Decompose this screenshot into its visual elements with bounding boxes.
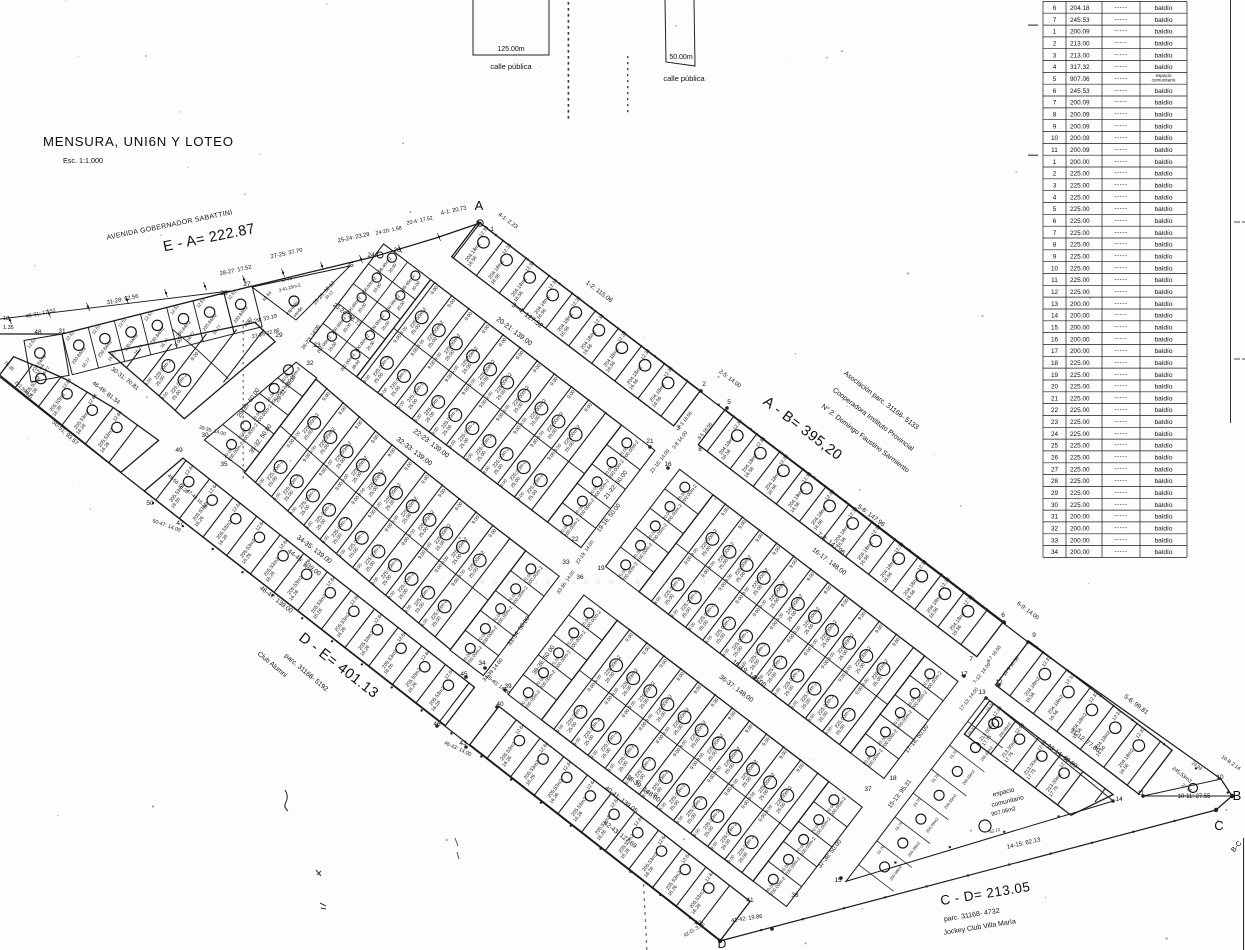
svg-text:-----: ----- [1114, 335, 1127, 342]
svg-text:30: 30 [201, 432, 209, 439]
svg-text:225.00: 225.00 [1070, 171, 1090, 178]
svg-text:-----: ----- [1114, 63, 1127, 70]
svg-text:-----: ----- [1114, 170, 1127, 177]
svg-text:225.00: 225.00 [1070, 431, 1090, 438]
svg-text:225.00: 225.00 [1070, 490, 1090, 497]
svg-text:16: 16 [664, 461, 672, 468]
svg-text:50: 50 [146, 500, 154, 507]
svg-text:baldío: baldío [1155, 29, 1173, 36]
svg-text:10-11: 27.55: 10-11: 27.55 [1178, 794, 1212, 800]
svg-text:7: 7 [969, 656, 973, 663]
svg-text:1: 1 [1053, 159, 1057, 166]
svg-text:14: 14 [1051, 313, 1059, 320]
svg-text:baldío: baldío [1155, 301, 1173, 308]
svg-text:-----: ----- [1114, 371, 1127, 378]
svg-text:19: 19 [597, 565, 605, 572]
svg-text:-----: ----- [1114, 323, 1127, 330]
svg-text:200.00: 200.00 [1070, 301, 1090, 308]
svg-text:907.06: 907.06 [1070, 76, 1090, 83]
svg-text:5: 5 [1053, 206, 1057, 213]
svg-text:baldío: baldío [1155, 502, 1173, 509]
svg-text:baldío: baldío [1155, 100, 1173, 107]
svg-text:-----: ----- [1114, 75, 1127, 82]
svg-text:21: 21 [646, 438, 654, 445]
svg-text:225.00: 225.00 [1070, 502, 1090, 509]
svg-text:34: 34 [478, 660, 486, 667]
svg-text:18: 18 [3, 316, 9, 322]
svg-text:200.00: 200.00 [1070, 514, 1090, 521]
svg-text:33: 33 [562, 559, 570, 566]
svg-text:13: 13 [978, 689, 986, 696]
svg-text:baldío: baldío [1155, 478, 1173, 485]
svg-text:28: 28 [220, 290, 228, 297]
svg-text:-----: ----- [1114, 122, 1127, 129]
svg-text:-----: ----- [1114, 347, 1127, 354]
svg-text:-----: ----- [1114, 513, 1127, 520]
svg-text:17: 17 [1051, 348, 1059, 355]
svg-text:200.00: 200.00 [1070, 313, 1090, 320]
svg-text:-----: ----- [1114, 394, 1127, 401]
svg-text:46: 46 [433, 721, 441, 728]
svg-text:-----: ----- [1114, 406, 1127, 413]
svg-text:7: 7 [1053, 17, 1057, 24]
svg-text:-----: ----- [1114, 548, 1127, 555]
svg-text:baldío: baldío [1155, 183, 1173, 190]
svg-text:4: 4 [1053, 64, 1057, 71]
svg-text:baldío: baldío [1155, 230, 1173, 237]
svg-text:225.00: 225.00 [1070, 407, 1090, 414]
svg-text:125.00m: 125.00m [497, 46, 524, 53]
svg-text:200.00: 200.00 [1070, 537, 1090, 544]
svg-text:225.00: 225.00 [1070, 194, 1090, 201]
svg-text:baldío: baldío [1155, 324, 1173, 331]
svg-text:-----: ----- [1114, 182, 1127, 189]
svg-text:5: 5 [1053, 76, 1057, 83]
svg-text:29: 29 [1051, 490, 1059, 497]
svg-text:25: 25 [346, 262, 354, 269]
svg-text:baldío: baldío [1155, 41, 1173, 48]
svg-text:225.00: 225.00 [1070, 183, 1090, 190]
svg-text:-----: ----- [1114, 489, 1127, 496]
svg-text:48: 48 [34, 329, 42, 336]
svg-text:-----: ----- [1114, 525, 1127, 532]
svg-text:225.00: 225.00 [1070, 230, 1090, 237]
svg-text:baldío: baldío [1155, 265, 1173, 272]
svg-text:225.00: 225.00 [1070, 455, 1090, 462]
svg-text:5: 5 [727, 399, 731, 406]
svg-text:-----: ----- [1114, 418, 1127, 425]
svg-text:-----: ----- [1114, 442, 1127, 449]
svg-text:32: 32 [306, 360, 314, 367]
svg-text:-----: ----- [1114, 454, 1127, 461]
svg-text:-----: ----- [1114, 158, 1127, 165]
svg-text:baldío: baldío [1155, 549, 1173, 556]
svg-text:baldío: baldío [1155, 52, 1173, 59]
svg-text:-----: ----- [1114, 501, 1127, 508]
svg-text:213.00: 213.00 [1070, 52, 1090, 59]
svg-text:baldío: baldío [1155, 112, 1173, 119]
svg-text:8: 8 [1053, 242, 1057, 249]
svg-text:32: 32 [1051, 526, 1059, 533]
svg-text:200.09: 200.09 [1070, 29, 1090, 36]
svg-text:28: 28 [1051, 478, 1059, 485]
svg-text:8: 8 [698, 446, 702, 453]
svg-text:1: 1 [1053, 29, 1057, 36]
svg-text:200.09: 200.09 [1070, 100, 1090, 107]
svg-text:baldío: baldío [1155, 5, 1173, 12]
svg-text:29: 29 [275, 332, 283, 339]
svg-text:-----: ----- [1114, 288, 1127, 295]
svg-text:43: 43 [459, 740, 467, 747]
svg-text:-----: ----- [1114, 111, 1127, 118]
svg-text:200.00: 200.00 [1070, 324, 1090, 331]
svg-text:3: 3 [676, 425, 680, 432]
svg-text:200.09: 200.09 [1070, 123, 1090, 130]
svg-text:200.09: 200.09 [1070, 147, 1090, 154]
svg-text:38: 38 [791, 892, 799, 899]
svg-text:34: 34 [1051, 549, 1059, 556]
svg-text:200.00: 200.00 [1070, 526, 1090, 533]
svg-text:-----: ----- [1114, 51, 1127, 58]
svg-text:26: 26 [1051, 455, 1059, 462]
svg-text:baldío: baldío [1155, 395, 1173, 402]
svg-text:baldío: baldío [1155, 490, 1173, 497]
svg-text:27: 27 [1051, 466, 1059, 473]
svg-text:A: A [475, 198, 484, 213]
svg-text:baldío: baldío [1155, 277, 1173, 284]
svg-text:13: 13 [1051, 301, 1059, 308]
svg-text:23: 23 [313, 342, 321, 349]
svg-text:baldío: baldío [1155, 360, 1173, 367]
svg-text:7: 7 [1053, 100, 1057, 107]
svg-text:-----: ----- [1114, 99, 1127, 106]
svg-text:baldío: baldío [1155, 526, 1173, 533]
svg-text:1.35: 1.35 [3, 325, 14, 331]
svg-text:-----: ----- [1114, 40, 1127, 47]
svg-text:225.00: 225.00 [1070, 242, 1090, 249]
svg-text:8: 8 [1053, 112, 1057, 119]
svg-text:21: 21 [1051, 395, 1059, 402]
svg-text:200.00: 200.00 [1070, 159, 1090, 166]
svg-text:15: 15 [1051, 324, 1059, 331]
svg-text:-----: ----- [1114, 276, 1127, 283]
svg-text:-----: ----- [1114, 241, 1127, 248]
svg-text:200.00: 200.00 [1070, 336, 1090, 343]
svg-text:-----: ----- [1114, 430, 1127, 437]
svg-text:10: 10 [1051, 135, 1059, 142]
svg-text:225.00: 225.00 [1070, 443, 1090, 450]
svg-text:33: 33 [1051, 537, 1059, 544]
svg-text:225.00: 225.00 [1070, 384, 1090, 391]
svg-text:baldío: baldío [1155, 123, 1173, 130]
svg-text:baldío: baldío [1155, 88, 1173, 95]
svg-text:-----: ----- [1114, 477, 1127, 484]
svg-text:baldío: baldío [1155, 289, 1173, 296]
svg-text:11: 11 [1138, 790, 1145, 797]
svg-text:42: 42 [694, 920, 702, 927]
svg-text:-----: ----- [1114, 4, 1127, 11]
svg-text:-----: ----- [1114, 383, 1127, 390]
svg-text:225.00: 225.00 [1070, 277, 1090, 284]
svg-text:baldío: baldío [1155, 17, 1173, 24]
svg-text:225.00: 225.00 [1070, 478, 1090, 485]
svg-text:24: 24 [367, 252, 375, 259]
svg-text:35: 35 [220, 461, 228, 468]
svg-text:-----: ----- [1114, 253, 1127, 260]
svg-text:245.53: 245.53 [1070, 88, 1090, 95]
svg-text:15: 15 [834, 877, 842, 884]
svg-text:225.00: 225.00 [1070, 360, 1090, 367]
svg-text:-----: ----- [1114, 217, 1127, 224]
svg-text:3: 3 [1053, 183, 1057, 190]
svg-text:20: 20 [1051, 384, 1059, 391]
svg-text:baldío: baldío [1155, 514, 1173, 521]
svg-text:comunitario: comunitario [1152, 78, 1176, 83]
svg-text:40: 40 [496, 701, 504, 708]
svg-text:Esc. 1:1.000: Esc. 1:1.000 [63, 156, 103, 165]
svg-text:2: 2 [702, 381, 706, 388]
svg-text:24: 24 [1051, 431, 1059, 438]
svg-text:22: 22 [571, 536, 579, 543]
svg-text:18: 18 [1051, 360, 1059, 367]
svg-text:-----: ----- [1114, 359, 1127, 366]
svg-text:baldío: baldío [1155, 443, 1173, 450]
svg-text:317.32: 317.32 [1070, 64, 1090, 71]
svg-text:200.09: 200.09 [1070, 112, 1090, 119]
svg-text:41: 41 [746, 897, 754, 904]
svg-text:-----: ----- [1114, 536, 1127, 543]
svg-text:2: 2 [1053, 171, 1057, 178]
svg-text:49: 49 [175, 447, 183, 454]
svg-text:200.00: 200.00 [1070, 348, 1090, 355]
svg-text:baldío: baldío [1155, 242, 1173, 249]
svg-text:-----: ----- [1114, 229, 1127, 236]
svg-text:baldío: baldío [1155, 206, 1173, 213]
svg-text:47: 47 [176, 520, 184, 527]
svg-text:baldío: baldío [1155, 313, 1173, 320]
svg-text:18: 18 [889, 775, 897, 782]
svg-text:baldío: baldío [1155, 372, 1173, 379]
svg-text:37: 37 [864, 786, 872, 793]
svg-text:-----: ----- [1114, 465, 1127, 472]
svg-text:baldío: baldío [1155, 194, 1173, 201]
svg-text:11: 11 [1051, 147, 1058, 154]
svg-text:MENSURA, UNI6N Y LOTEO: MENSURA, UNI6N Y LOTEO [43, 134, 234, 149]
svg-text:225.00: 225.00 [1070, 218, 1090, 225]
svg-text:22: 22 [1051, 407, 1059, 414]
svg-text:19: 19 [1051, 372, 1059, 379]
svg-text:6: 6 [1053, 218, 1057, 225]
svg-text:4: 4 [1053, 194, 1057, 201]
svg-text:baldío: baldío [1155, 384, 1173, 391]
svg-text:w a a m a a c a a a: w a a m a a c a a a w a a a a a m a a [478, 577, 721, 586]
svg-text:2: 2 [1053, 41, 1057, 48]
svg-text:calle pública: calle pública [490, 62, 532, 71]
svg-text:baldío: baldío [1155, 407, 1173, 414]
svg-text:9: 9 [1032, 632, 1036, 639]
svg-text:12: 12 [995, 679, 1003, 686]
svg-text:baldío: baldío [1155, 147, 1173, 154]
svg-text:225.00: 225.00 [1070, 265, 1090, 272]
svg-text:12: 12 [1051, 289, 1059, 296]
svg-text:baldío: baldío [1155, 348, 1173, 355]
svg-text:17: 17 [960, 671, 968, 678]
svg-text:16: 16 [1051, 336, 1059, 343]
svg-text:-----: ----- [1114, 28, 1127, 35]
svg-text:baldío: baldío [1155, 466, 1173, 473]
svg-text:225.00: 225.00 [1070, 395, 1090, 402]
svg-text:7: 7 [1053, 230, 1057, 237]
svg-text:10: 10 [1216, 774, 1224, 781]
svg-text:204.18: 204.18 [1070, 5, 1090, 12]
svg-text:-----: ----- [1114, 312, 1127, 319]
svg-text:9: 9 [1053, 123, 1057, 130]
svg-text:6: 6 [1053, 88, 1057, 95]
svg-text:6: 6 [1001, 612, 1005, 619]
svg-text:D: D [718, 937, 727, 950]
svg-text:3: 3 [1053, 52, 1057, 59]
svg-text:1: 1 [490, 226, 494, 233]
svg-text:23: 23 [1051, 419, 1059, 426]
svg-text:11: 11 [1051, 277, 1058, 284]
svg-text:baldío: baldío [1155, 159, 1173, 166]
svg-text:245.53: 245.53 [1070, 17, 1090, 24]
svg-text:225.00: 225.00 [1070, 206, 1090, 213]
svg-text:39: 39 [504, 683, 512, 690]
svg-text:10: 10 [1051, 265, 1059, 272]
svg-text:200.00: 200.00 [1070, 549, 1090, 556]
svg-text:-----: ----- [1114, 87, 1127, 94]
svg-text:baldío: baldío [1155, 171, 1173, 178]
svg-text:20: 20 [393, 247, 401, 254]
svg-text:-----: ----- [1114, 146, 1127, 153]
svg-text:baldío: baldío [1155, 254, 1173, 261]
svg-text:baldío: baldío [1155, 455, 1173, 462]
svg-text:9: 9 [1053, 254, 1057, 261]
svg-text:225.00: 225.00 [1070, 466, 1090, 473]
svg-text:30: 30 [1051, 502, 1059, 509]
svg-text:baldío: baldío [1155, 336, 1173, 343]
svg-text:225.00: 225.00 [1070, 372, 1090, 379]
svg-text:baldío: baldío [1155, 64, 1173, 71]
svg-text:225.00: 225.00 [1070, 254, 1090, 261]
svg-text:225.00: 225.00 [1070, 289, 1090, 296]
svg-text:baldío: baldío [1155, 419, 1173, 426]
svg-text:baldío: baldío [1155, 431, 1173, 438]
svg-text:31: 31 [58, 328, 66, 335]
svg-text:-----: ----- [1114, 300, 1127, 307]
svg-text:-----: ----- [1114, 16, 1127, 23]
svg-text:6: 6 [1053, 5, 1057, 12]
svg-text:-----: ----- [1114, 134, 1127, 141]
svg-text:14: 14 [1115, 796, 1123, 803]
svg-text:213.00: 213.00 [1070, 41, 1090, 48]
svg-text:25: 25 [1051, 443, 1059, 450]
svg-text:baldío: baldío [1155, 218, 1173, 225]
svg-text:50.00m: 50.00m [669, 54, 693, 61]
svg-text:45: 45 [460, 671, 468, 678]
svg-text:200.09: 200.09 [1070, 135, 1090, 142]
svg-text:31: 31 [1051, 514, 1059, 521]
svg-text:B: B [1233, 788, 1242, 803]
svg-text:baldío: baldío [1155, 537, 1173, 544]
svg-text:baldío: baldío [1155, 135, 1173, 142]
svg-text:calle pública: calle pública [663, 74, 705, 83]
svg-text:-----: ----- [1114, 205, 1127, 212]
svg-text:27: 27 [243, 281, 251, 288]
svg-text:225.00: 225.00 [1070, 419, 1090, 426]
svg-text:-----: ----- [1114, 193, 1127, 200]
svg-text:-----: ----- [1114, 264, 1127, 271]
